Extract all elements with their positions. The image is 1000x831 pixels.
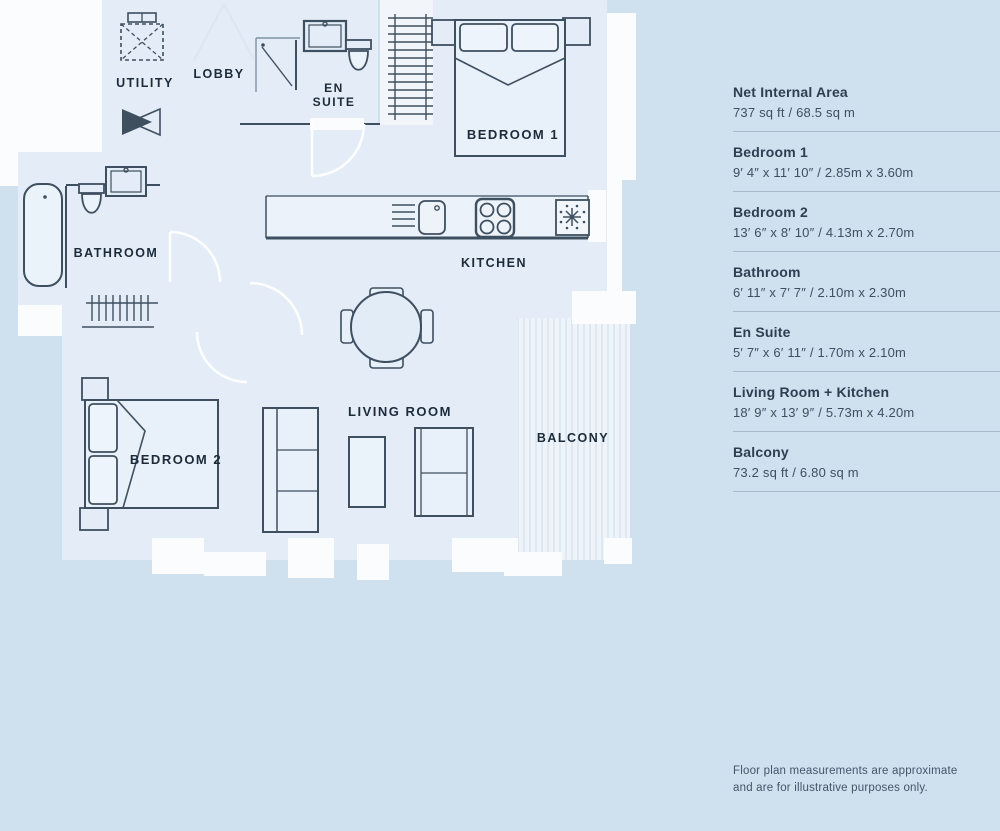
legend-entry-name: En Suite: [733, 324, 1000, 341]
disclaimer-line2: and are for illustrative purposes only.: [733, 780, 994, 797]
legend-entry-dimensions: 73.2 sq ft / 6.80 sq m: [733, 465, 1000, 481]
legend-entry-dimensions: 737 sq ft / 68.5 sq m: [733, 105, 1000, 121]
disclaimer-line1: Floor plan measurements are approximate: [733, 763, 994, 780]
legend-entry-name: Bedroom 1: [733, 144, 1000, 161]
living-room-label: LIVING ROOM: [348, 404, 452, 419]
bedroom1-label: BEDROOM 1: [467, 127, 559, 142]
lobby-label: LOBBY: [193, 67, 244, 81]
area-legend: Net Internal Area 737 sq ft / 68.5 sq m …: [733, 84, 1000, 492]
legend-entry-bedroom2: Bedroom 2 13′ 6″ x 8′ 10″ / 4.13m x 2.70…: [733, 192, 1000, 252]
hob-icon: [476, 199, 514, 237]
disclaimer-text: Floor plan measurements are approximate …: [733, 763, 994, 798]
legend-entry-name: Living Room + Kitchen: [733, 384, 1000, 401]
legend-entry-living-room-kitchen: Living Room + Kitchen 18′ 9″ x 13′ 9″ / …: [733, 372, 1000, 432]
ensuite-label-line1: EN: [324, 81, 344, 95]
legend-entry-name: Bedroom 2: [733, 204, 1000, 221]
legend-entry-dimensions: 9′ 4″ x 11′ 10″ / 2.85m x 3.60m: [733, 165, 1000, 181]
kitchen-sink-icon: [419, 201, 445, 234]
legend-entry-name: Net Internal Area: [733, 84, 1000, 101]
legend-entry-name: Bathroom: [733, 264, 1000, 281]
bathtub-icon: [24, 184, 62, 286]
bathroom-sink-icon: [106, 167, 146, 196]
legend-entry-balcony: Balcony 73.2 sq ft / 6.80 sq m: [733, 432, 1000, 492]
legend-entry-dimensions: 6′ 11″ x 7′ 7″ / 2.10m x 2.30m: [733, 285, 1000, 301]
legend-entry-bathroom: Bathroom 6′ 11″ x 7′ 7″ / 2.10m x 2.30m: [733, 252, 1000, 312]
balcony-label: BALCONY: [537, 431, 609, 445]
bedroom2-label: BEDROOM 2: [130, 452, 222, 467]
legend-entry-en-suite: En Suite 5′ 7″ x 6′ 11″ / 1.70m x 2.10m: [733, 312, 1000, 372]
sofa-icon: [263, 408, 318, 532]
legend-entry-dimensions: 18′ 9″ x 13′ 9″ / 5.73m x 4.20m: [733, 405, 1000, 421]
armchair-icon: [415, 428, 473, 516]
floor-plan-drawing: UTILITY LOBBY EN SUITE BEDROOM 1 KITCHEN…: [0, 0, 660, 600]
floor-plan: UTILITY LOBBY EN SUITE BEDROOM 1 KITCHEN…: [0, 0, 660, 600]
ensuite-sink-icon: [304, 21, 346, 51]
legend-entry-name: Balcony: [733, 444, 1000, 461]
legend-entry-net-internal-area: Net Internal Area 737 sq ft / 68.5 sq m: [733, 84, 1000, 132]
legend-entry-bedroom1: Bedroom 1 9′ 4″ x 11′ 10″ / 2.85m x 3.60…: [733, 132, 1000, 192]
coffee-table-icon: [349, 437, 385, 507]
utility-label: UTILITY: [116, 76, 174, 90]
legend-entry-dimensions: 13′ 6″ x 8′ 10″ / 4.13m x 2.70m: [733, 225, 1000, 241]
kitchen-label: KITCHEN: [461, 256, 527, 270]
freezer-icon: [556, 200, 589, 235]
ensuite-label-line2: SUITE: [313, 95, 356, 109]
bathroom-label: BATHROOM: [74, 246, 159, 260]
legend-entry-dimensions: 5′ 7″ x 6′ 11″ / 1.70m x 2.10m: [733, 345, 1000, 361]
